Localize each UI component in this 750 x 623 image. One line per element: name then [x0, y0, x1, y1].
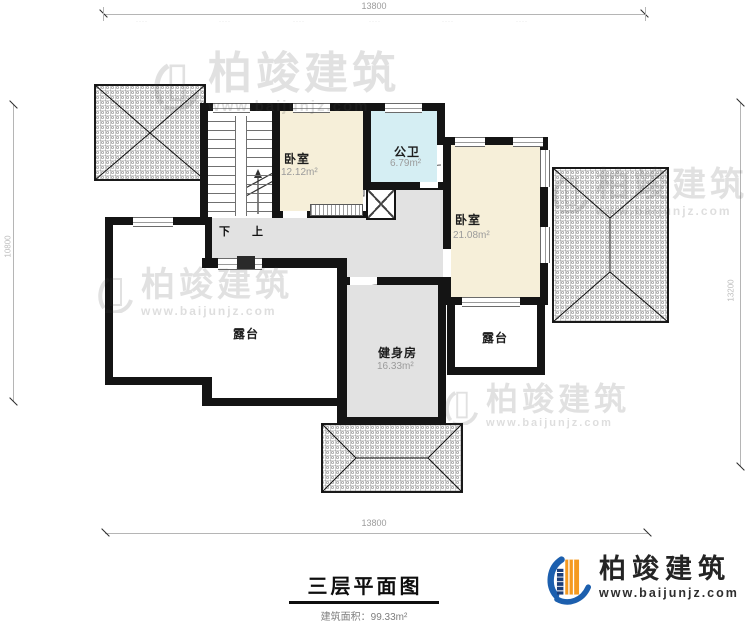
wardrobe [310, 204, 363, 216]
dimension-line-right [740, 103, 741, 467]
wall-segment [438, 277, 446, 425]
wall-segment [173, 217, 208, 225]
room-label-gym: 健身房 [378, 344, 417, 361]
window [540, 150, 550, 187]
page-title: 三层平面图 [291, 570, 439, 599]
dimension-sub: ···· [219, 19, 231, 25]
dimension-sub: ···· [369, 19, 381, 25]
window [133, 217, 173, 227]
room-area-bathroom: 6.79m² [390, 158, 421, 169]
title-underline [289, 601, 439, 604]
wall-segment [363, 103, 371, 190]
window [385, 103, 422, 113]
room-area-bedroom2: 21.08m² [453, 230, 490, 241]
wall-segment [537, 305, 545, 375]
wall-segment [520, 297, 548, 305]
dimension-left-value: 10800 [4, 223, 13, 271]
wall-segment [540, 187, 548, 227]
wall-segment [205, 217, 212, 262]
room-area-bedroom1: 12.12m² [281, 167, 318, 178]
building-area-label: 建筑面积：99.33m² [289, 608, 439, 623]
dimension-extension [645, 7, 646, 21]
wall-segment [202, 398, 343, 406]
wall-segment [262, 258, 343, 268]
window [213, 103, 250, 113]
window [513, 137, 543, 147]
wall-segment [485, 137, 513, 145]
wall-segment [272, 211, 283, 218]
wall-segment [200, 103, 208, 225]
window [462, 297, 520, 307]
stair-up-label: 上 [252, 223, 263, 239]
terrace-door [237, 256, 255, 269]
dimension-sub: ···· [293, 19, 305, 25]
wall-segment [337, 277, 350, 285]
roof-top-left [95, 85, 205, 180]
dimension-right-value: 13200 [727, 267, 736, 315]
company-logo: 柏竣建筑 www.baijunjz.com [545, 551, 739, 605]
dimension-sub: ···· [442, 19, 454, 25]
stair-stringer [235, 116, 247, 216]
stair-down-label: 下 [219, 223, 230, 239]
wall-segment [272, 103, 280, 218]
wall-segment [447, 305, 455, 375]
floor-plan-canvas: 卧室 12.12m² 公卫 6.79m² 卧室 21.08m² 健身房 16.3… [0, 0, 750, 623]
room-label-terrace-right: 露台 [482, 329, 508, 346]
roof-bottom [322, 424, 462, 492]
wall-segment [105, 377, 212, 385]
dimension-line-bottom [105, 533, 648, 534]
room-area-gym: 16.33m² [377, 361, 414, 372]
wall-segment [105, 217, 113, 385]
roof-right [553, 168, 668, 322]
hallway-column [347, 258, 443, 277]
dimension-extension [103, 7, 104, 21]
dimension-sub: ···· [516, 19, 528, 25]
dimension-bottom-value: 13800 [350, 518, 398, 528]
duct-shaft [366, 188, 396, 220]
hallway [212, 218, 443, 258]
room-label-bedroom1: 卧室 [284, 150, 310, 167]
room-label-bedroom2: 卧室 [455, 211, 481, 228]
dimension-line-top [103, 14, 645, 15]
room-label-terrace-left: 露台 [233, 325, 259, 342]
wall-segment [443, 137, 451, 249]
wall-segment [337, 417, 446, 425]
company-name: 柏竣建筑 [599, 556, 739, 583]
window [293, 103, 330, 113]
company-url: www.baijunjz.com [599, 586, 739, 600]
window [540, 227, 550, 263]
wall-segment [447, 367, 545, 375]
dimension-line-left [13, 105, 14, 402]
window [455, 137, 485, 147]
wall-segment [377, 277, 446, 285]
dimension-sub: ···· [136, 19, 148, 25]
hall-nook [396, 190, 443, 218]
dimension-top-value: 13800 [350, 1, 398, 11]
company-logo-icon [545, 551, 591, 605]
